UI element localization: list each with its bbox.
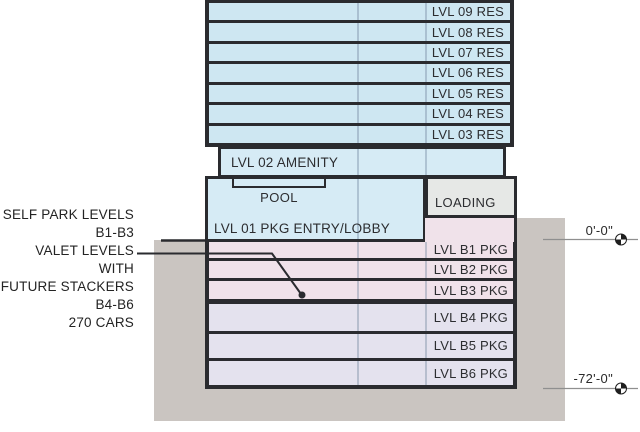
level-label: LVL B3 PKG bbox=[434, 283, 508, 298]
annotation-line: B1-B3 bbox=[0, 224, 134, 242]
datum-marker-icon bbox=[616, 234, 627, 245]
level-label: LVL 04 RES bbox=[432, 106, 504, 121]
basement-level-row: LVL B2 PKG bbox=[209, 258, 513, 279]
level-label: LVL 08 RES bbox=[432, 25, 504, 40]
pool-basin bbox=[232, 179, 326, 188]
elevation-label-lowest: -72'-0" bbox=[573, 371, 613, 386]
tower-level-row: LVL 09 RES bbox=[209, 0, 510, 20]
pool-label: POOL bbox=[232, 190, 326, 205]
b1-upper-extension bbox=[425, 218, 517, 242]
level-label: LVL B1 PKG bbox=[434, 242, 508, 257]
annotation-line: SELF PARK LEVELS bbox=[0, 206, 134, 224]
level-label: LOADING bbox=[435, 195, 496, 210]
level-label: LVL 05 RES bbox=[432, 86, 504, 101]
basement-level-row: LVL B5 PKG bbox=[209, 331, 513, 359]
annotation-line: B4-B6 bbox=[0, 296, 134, 314]
tower-level-row: LVL 03 RES bbox=[209, 123, 510, 143]
level-label: LVL B4 PKG bbox=[434, 310, 508, 325]
datum-marker-icon bbox=[616, 383, 627, 394]
level-label: LVL B2 PKG bbox=[434, 262, 508, 277]
earth-mass-bottom bbox=[154, 389, 565, 421]
level-label: LVL 07 RES bbox=[432, 45, 504, 60]
basement-parking: LVL B1 PKG LVL B2 PKG LVL B3 PKG LVL B4 … bbox=[205, 242, 517, 389]
basement-level-row: LVL B6 PKG bbox=[209, 358, 513, 385]
lvl01-lobby-block: POOL LVL 01 PKG ENTRY/LOBBY bbox=[205, 176, 426, 242]
loading-block: LOADING bbox=[425, 176, 517, 218]
tower-level-row: LVL 05 RES bbox=[209, 82, 510, 102]
residential-tower: LVL 09 RES LVL 08 RES LVL 07 RES LVL 06 … bbox=[205, 0, 514, 147]
level-label: LVL 02 AMENITY bbox=[231, 155, 338, 170]
tower-level-row: LVL 07 RES bbox=[209, 41, 510, 61]
elevation-label-ground: 0'-0" bbox=[586, 223, 613, 238]
annotation-line: 270 CARS bbox=[0, 314, 134, 332]
tower-level-row: LVL 08 RES bbox=[209, 20, 510, 40]
basement-level-row: LVL B1 PKG bbox=[209, 242, 513, 258]
level-label: LVL 06 RES bbox=[432, 65, 504, 80]
level-label: LVL B6 PKG bbox=[434, 366, 508, 381]
annotation-line: VALET LEVELS WITH bbox=[0, 242, 134, 278]
level-label: LVL 03 RES bbox=[432, 127, 504, 142]
tower-level-row: LVL 06 RES bbox=[209, 61, 510, 81]
tower-level-row: LVL 04 RES bbox=[209, 102, 510, 122]
building-section-diagram: LVL 09 RES LVL 08 RES LVL 07 RES LVL 06 … bbox=[0, 0, 640, 432]
level-label: LVL B5 PKG bbox=[434, 338, 508, 353]
level-label: LVL 09 RES bbox=[432, 4, 504, 19]
parking-annotation: SELF PARK LEVELS B1-B3 VALET LEVELS WITH… bbox=[0, 206, 134, 332]
annotation-line: FUTURE STACKERS bbox=[0, 278, 134, 296]
basement-level-row: LVL B3 PKG bbox=[209, 278, 513, 299]
level-label: LVL 01 PKG ENTRY/LOBBY bbox=[214, 221, 390, 236]
basement-level-row: LVL B4 PKG bbox=[209, 299, 513, 330]
amenity-level: LVL 02 AMENITY bbox=[218, 146, 506, 178]
